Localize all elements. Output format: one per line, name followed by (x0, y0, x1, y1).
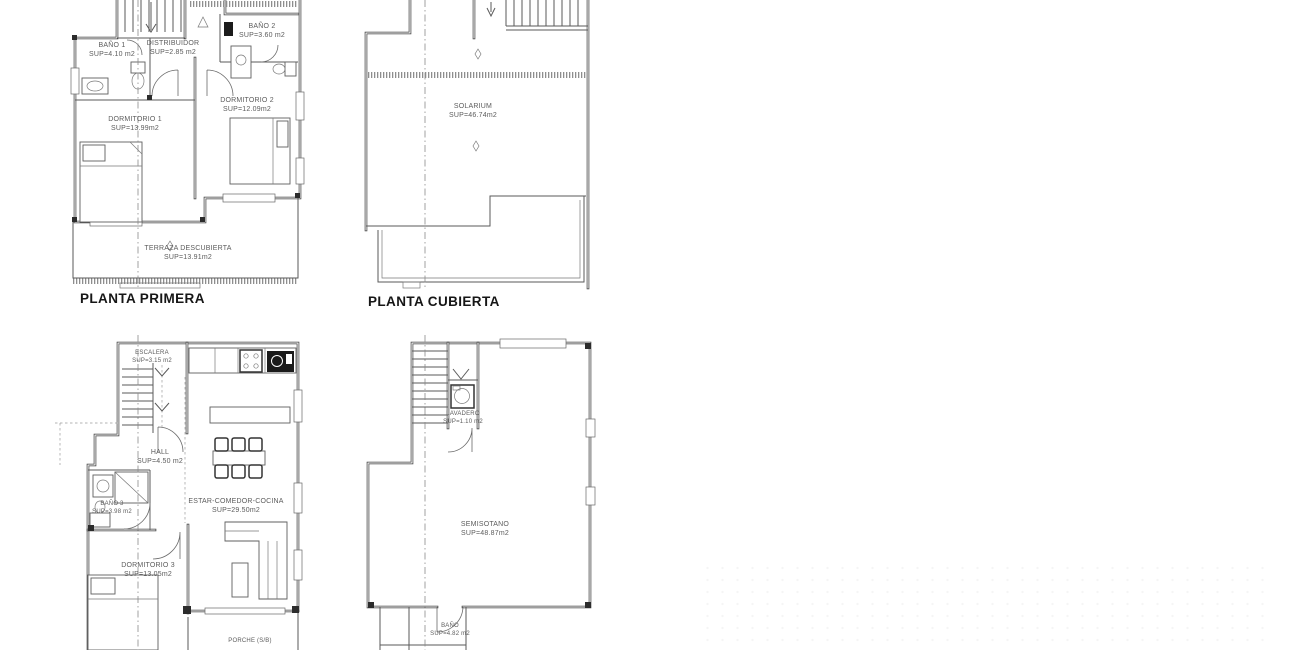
room-area: SUP=1.10 m2 (443, 419, 483, 427)
room-area: SUP=3.60 m2 (239, 31, 285, 40)
room-area: SUP=12.09m2 (220, 105, 274, 114)
stair-arrow-icon (146, 2, 156, 32)
room-label-dormitorio-2: DORMITORIO 2 SUP=12.09m2 (220, 96, 274, 114)
room-name: BAÑO 1 (89, 41, 135, 50)
bathroom-fixtures (90, 472, 148, 527)
room-name: SOLARIUM (449, 102, 497, 111)
washbasin-icon (93, 475, 113, 497)
room-label-estar-comedor-cocina: ESTAR-COMEDOR-COCINA SUP=29.50m2 (188, 497, 283, 515)
plan-title-planta-cubierta: PLANTA CUBIERTA (368, 294, 500, 309)
room-area: SUP=2.85 m2 (147, 48, 200, 57)
room-label-dormitorio-1: DORMITORIO 1 SUP=13.99m2 (108, 115, 162, 133)
room-name: LAVADERO (443, 411, 483, 419)
plan-drawing-planta-cubierta (360, 0, 600, 315)
room-name: BAÑO 2 (239, 22, 285, 31)
room-label-escalera: ESCALERA SUP=3.15 m2 (132, 350, 172, 366)
plan-drawing-semisotano (360, 335, 600, 650)
room-area: SUP=46.74m2 (449, 111, 497, 120)
room-name: DORMITORIO 1 (108, 115, 162, 124)
exterior-walls (368, 343, 590, 607)
room-name: HALL (137, 448, 183, 457)
roof-parapet-lines (366, 196, 586, 288)
room-label-solarium: SOLARIUM SUP=46.74m2 (449, 102, 497, 120)
stair-arrow-icon (453, 369, 469, 379)
room-name: TERRAZA DESCUBIERTA (144, 244, 231, 253)
faint-watermark (700, 562, 1275, 644)
floorplan-planta-primera: BAÑO 1 SUP=4.10 m2 DISTRIBUIDOR SUP=2.85… (55, 0, 310, 315)
room-label-porche: PORCHE (S/B) (228, 638, 271, 646)
stairs (122, 363, 169, 433)
room-label-bano-1: BAÑO 1 SUP=4.10 m2 (89, 41, 135, 59)
stair-arrow-icon (487, 2, 495, 16)
laundry (451, 385, 474, 408)
room-name: BAÑO (430, 623, 470, 631)
stairs (125, 0, 181, 32)
room-name: BAÑO 3 (92, 501, 132, 509)
coffee-table (232, 563, 248, 597)
floorplan-semisotano: LAVADERO SUP=1.10 m2 SEMISOTANO SUP=48.8… (360, 335, 600, 650)
floorplan-planta-baja: ESCALERA SUP=3.15 m2 HALL SUP=4.50 m2 BA… (55, 335, 310, 650)
floorplan-planta-cubierta: SOLARIUM SUP=46.74m2 PLANTA CUBIERTA (360, 0, 600, 315)
room-area: SUP=29.50m2 (188, 506, 283, 515)
exterior-walls (366, 0, 588, 288)
drawing-canvas: BAÑO 1 SUP=4.10 m2 DISTRIBUIDOR SUP=2.85… (0, 0, 1291, 650)
room-name: ESTAR-COMEDOR-COCINA (188, 497, 283, 506)
room-label-bano-3: BAÑO 3 SUP=3.98 m2 (92, 501, 132, 517)
plan-drawing-planta-baja (55, 335, 310, 650)
kitchen (189, 348, 296, 423)
room-label-lavadero: LAVADERO SUP=1.10 m2 (443, 411, 483, 427)
room-name: DORMITORIO 3 (121, 561, 175, 570)
kitchen-island (210, 407, 290, 423)
stove-icon (240, 350, 262, 372)
room-area: SUP=13.05m2 (121, 570, 175, 579)
room-label-bano-semisotano: BAÑO SUP=4.82 m2 (430, 623, 470, 639)
dining-set (213, 438, 265, 478)
windows (500, 339, 595, 505)
room-area: SUP=4.82 m2 (430, 631, 470, 639)
room-name: ESCALERA (132, 350, 172, 358)
room-area: SUP=48.87m2 (461, 529, 509, 538)
room-label-semisotano: SEMISOTANO SUP=48.87m2 (461, 520, 509, 538)
room-label-dormitorio-3: DORMITORIO 3 SUP=13.05m2 (121, 561, 175, 579)
drain-symbols (473, 49, 481, 151)
bed-dormitorio-3 (88, 575, 158, 650)
room-label-distribuidor: DISTRIBUIDOR SUP=2.85 m2 (147, 39, 200, 57)
room-name: PORCHE (S/B) (228, 638, 271, 646)
bed-dormitorio-2 (230, 118, 290, 184)
room-label-terraza: TERRAZA DESCUBIERTA SUP=13.91m2 (144, 244, 231, 262)
room-area: SUP=13.91m2 (144, 253, 231, 262)
room-name: DISTRIBUIDOR (147, 39, 200, 48)
plan-title-planta-primera: PLANTA PRIMERA (80, 291, 205, 306)
room-label-hall: HALL SUP=4.50 m2 (137, 448, 183, 466)
room-area: SUP=13.99m2 (108, 124, 162, 133)
wall-pillars (368, 343, 591, 608)
room-name: DORMITORIO 2 (220, 96, 274, 105)
room-area: SUP=3.98 m2 (92, 509, 132, 517)
room-area: SUP=3.15 m2 (132, 358, 172, 366)
stair-arrow-icon (155, 368, 169, 411)
room-area: SUP=4.50 m2 (137, 457, 183, 466)
room-label-bano-2: BAÑO 2 SUP=3.60 m2 (239, 22, 285, 40)
stairs (487, 0, 588, 30)
bed-dormitorio-1 (80, 142, 142, 222)
sofa (225, 522, 287, 599)
room-name: SEMISOTANO (461, 520, 509, 529)
room-area: SUP=4.10 m2 (89, 50, 135, 59)
